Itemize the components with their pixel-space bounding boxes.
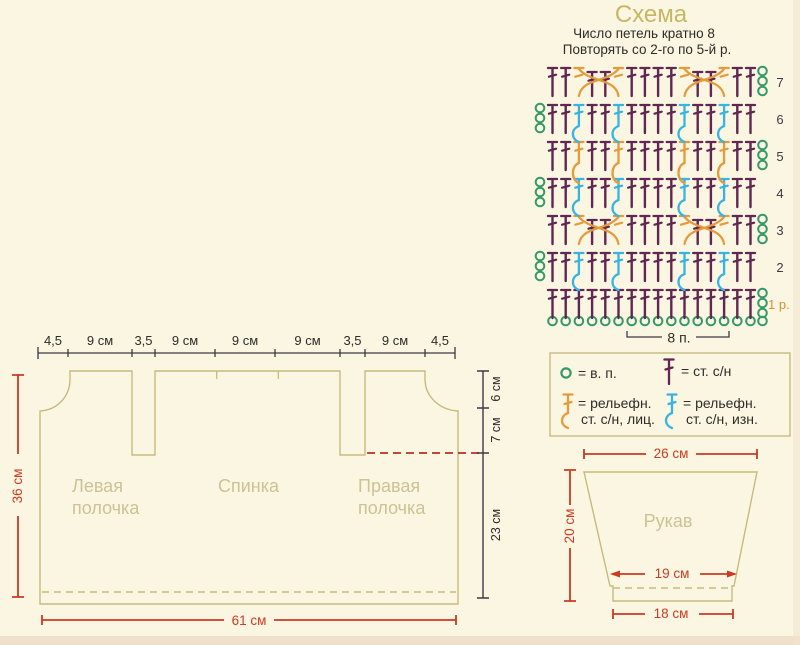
top-measure-label: 9 см: [232, 333, 258, 348]
top-measure-label: 3,5: [134, 333, 152, 348]
top-measure-label: 9 см: [172, 333, 198, 348]
turning-chain: [758, 225, 767, 234]
turning-chain: [536, 272, 545, 281]
row-number-label: 6: [776, 112, 783, 127]
turning-chain: [758, 235, 767, 244]
sleeve-bottom-measure-label: 18 см: [654, 606, 689, 621]
page-bottom-edge: [0, 636, 800, 645]
relief-back-stitch: [613, 180, 619, 216]
sleeve-schematic: Рукав 26 см 20 см 19 см 18 см: [562, 446, 757, 621]
right-measurement: 6 см 7 см 23 см: [477, 371, 503, 598]
piece-label-left-front-2: полочка: [72, 498, 140, 518]
legend-relief-back-label-1: = рельефн.: [683, 395, 757, 411]
turning-chain: [758, 77, 767, 86]
row-number-label: 5: [776, 149, 783, 164]
piece-label-right-front-1: Правая: [358, 476, 420, 496]
pattern-svg: Схема Число петель кратно 8 Повторять со…: [0, 0, 800, 645]
turning-chain: [758, 141, 767, 150]
relief-back-stitch: [679, 180, 685, 216]
row-number-label: 1 р.: [768, 297, 790, 312]
piece-label-back: Спинка: [218, 476, 280, 496]
turning-chain: [758, 151, 767, 160]
chart-title: Схема: [615, 1, 688, 28]
relief-back-stitch: [573, 180, 579, 216]
turning-chain: [536, 188, 545, 197]
dc-stitch-icon: [664, 360, 673, 385]
top-measure-label: 9 см: [382, 333, 408, 348]
chart-subtitle-2: Повторять со 2-го по 5-й р.: [563, 42, 731, 57]
chart-header: Схема Число петель кратно 8 Повторять со…: [563, 1, 731, 57]
bottom-measure-label: 61 см: [232, 613, 267, 628]
sleeve-top-measure-label: 26 см: [654, 446, 689, 461]
sleeve-side-measurement: 20 см: [562, 470, 577, 601]
left-measurement: 36 см: [10, 375, 25, 597]
right-measure-label: 7 см: [489, 417, 503, 442]
top-measure-label: 3,5: [343, 333, 361, 348]
sleeve-bottom-measurement: 18 см: [613, 606, 733, 621]
turning-chain: [536, 104, 545, 113]
turning-chain: [758, 299, 767, 308]
piece-label-left-front-1: Левая: [72, 476, 123, 496]
row-number-label: 4: [776, 186, 783, 201]
relief-front-stitch-icon: [562, 395, 573, 429]
legend-chain-label: = в. п.: [578, 365, 617, 381]
relief-back-stitch: [573, 106, 579, 142]
legend-relief-back-label-2: ст. с/н, изн.: [686, 411, 758, 427]
piece-label-right-front-2: полочка: [358, 498, 426, 518]
top-measure-label: 9 см: [87, 333, 113, 348]
repeat-bracket-label: 8 п.: [667, 330, 690, 346]
body-schematic: Левая полочка Спинка Правая полочка 4,5 …: [10, 333, 503, 628]
relief-back-stitch: [718, 180, 724, 216]
right-measure-line: [477, 371, 489, 598]
sleeve-inner-measurement: 19 см: [610, 566, 737, 581]
crochet-chart: 1 р.2345678 п.: [536, 67, 790, 346]
sleeve-outline: [584, 472, 757, 601]
turning-chain: [536, 124, 545, 133]
sleeve-inner-measure-label: 19 см: [655, 566, 690, 581]
turning-chain: [758, 87, 767, 96]
turning-chain: [536, 114, 545, 123]
turning-chain: [758, 215, 767, 224]
relief-back-stitch: [718, 106, 724, 142]
sleeve-top-measurement: 26 см: [584, 446, 757, 461]
relief-back-stitch: [613, 254, 619, 290]
turning-chain: [536, 198, 545, 207]
back-division-ticks: [217, 371, 279, 379]
row-number-label: 7: [776, 75, 783, 90]
left-measure-label: 36 см: [10, 469, 25, 504]
top-measure-label: 4,5: [44, 333, 62, 348]
turning-chain: [536, 262, 545, 271]
page-right-edge: [793, 0, 800, 645]
relief-back-stitch-icon: [666, 395, 677, 429]
bottom-measurement: 61 см: [42, 613, 456, 628]
legend-dc-label: = ст. с/н: [681, 363, 731, 379]
row-number-label: 2: [776, 260, 783, 275]
chart-legend: = в. п. = ст. с/н = рельефн. ст. с/н, ли…: [550, 353, 790, 436]
right-measure-label: 6 см: [489, 376, 503, 401]
turning-chain: [758, 161, 767, 170]
top-measure-label: 4,5: [431, 333, 449, 348]
turning-chain: [758, 67, 767, 76]
relief-back-stitch: [613, 106, 619, 142]
top-measure-label: 9 см: [294, 333, 320, 348]
chain-stitch-icon: [561, 368, 570, 377]
turning-chain: [536, 178, 545, 187]
relief-back-stitch: [718, 254, 724, 290]
right-measure-label: 23 см: [489, 509, 503, 541]
relief-back-stitch: [679, 106, 685, 142]
turning-chain: [536, 252, 545, 261]
legend-relief-front-label-1: = рельефн.: [578, 395, 652, 411]
turning-chain: [758, 289, 767, 298]
sleeve-label: Рукав: [644, 511, 693, 531]
relief-back-stitch: [573, 254, 579, 290]
legend-relief-front-label-2: ст. с/н, лиц.: [581, 411, 655, 427]
top-measurement: 4,5 9 см 3,5 9 см 9 см 9 см 3,5 9 см 4,5: [38, 333, 455, 359]
knitting-pattern-page: Схема Число петель кратно 8 Повторять со…: [0, 0, 800, 645]
relief-back-stitch: [679, 254, 685, 290]
sleeve-side-measure-label: 20 см: [562, 509, 577, 544]
row-number-label: 3: [776, 223, 783, 238]
chart-subtitle-1: Число петель кратно 8: [573, 26, 715, 41]
